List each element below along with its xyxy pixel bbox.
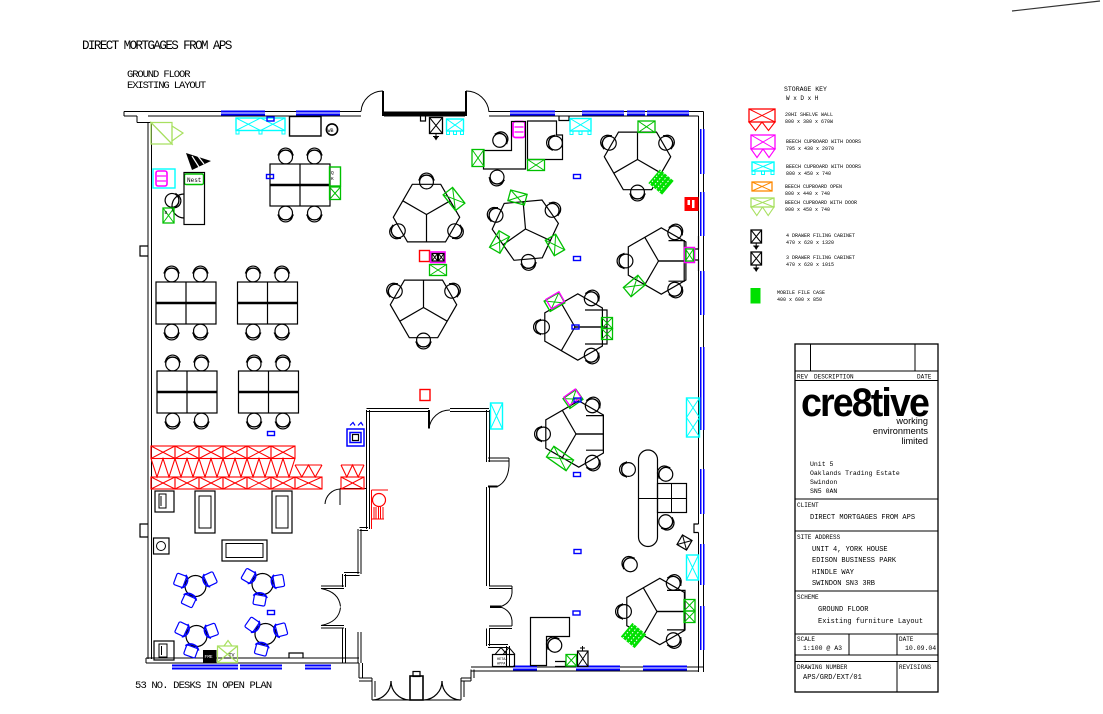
svg-text:STORAGE KEY: STORAGE KEY [784,86,827,93]
svg-text:800 x 450 x 740: 800 x 450 x 740 [786,171,831,177]
svg-text:B: B [165,210,168,216]
svg-text:3 DRAWER FILING CABINET: 3 DRAWER FILING CABINET [786,255,855,261]
svg-text:DRAWING NUMBER: DRAWING NUMBER [797,664,848,671]
svg-text:HINDLE WAY: HINDLE WAY [812,569,855,577]
svg-text:53 NO. DESKS IN OPEN PLAN: 53 NO. DESKS IN OPEN PLAN [135,680,272,692]
svg-text:BEECH CUPBOARD WITH DOOR: BEECH CUPBOARD WITH DOOR [785,200,857,206]
svg-text:400 x 600 x 850: 400 x 600 x 850 [777,297,822,303]
svg-text:800 x 380 x 670W: 800 x 380 x 670W [785,119,833,125]
svg-text:470 x 620 x 1015: 470 x 620 x 1015 [786,262,834,268]
svg-text:HETAJ: HETAJ [497,658,508,662]
svg-text:DATE: DATE [899,636,914,643]
svg-text:environments: environments [873,426,929,436]
svg-text:limited: limited [901,436,928,446]
svg-text:SITE ADDRESS: SITE ADDRESS [797,534,841,541]
svg-text:working: working [895,416,928,426]
svg-text:WB: WB [328,128,334,134]
svg-text:REV: REV [797,374,808,381]
svg-text:GROUND FLOOR: GROUND FLOOR [818,606,869,614]
svg-text:EDISON BUSINESS PARK: EDISON BUSINESS PARK [812,557,897,565]
svg-text:SN5 0AN: SN5 0AN [810,488,837,495]
svg-text:900 x 450 x 740: 900 x 450 x 740 [785,207,830,213]
svg-text:Swindon: Swindon [810,479,837,486]
svg-text:DIRECT MORTGAGES FROM APS: DIRECT MORTGAGES FROM APS [82,39,232,53]
svg-text:1:100 @ A3: 1:100 @ A3 [803,645,842,652]
svg-text:TV: TV [229,653,235,659]
svg-text:BEECH CUPBOARD WITH DOORS: BEECH CUPBOARD WITH DOORS [786,139,861,145]
svg-text:W x D x H: W x D x H [786,95,819,102]
svg-text:800 x 440 x 740: 800 x 440 x 740 [785,191,830,197]
svg-text:4 DRAWER FILING CABINET: 4 DRAWER FILING CABINET [786,233,855,239]
svg-text:470 x 620 x 1320: 470 x 620 x 1320 [786,240,834,246]
svg-text:Existing furniture Layout: Existing furniture Layout [818,618,923,626]
svg-text:SWINDON SN3 3RB: SWINDON SN3 3RB [812,580,875,588]
svg-text:DIRECT MORTGAGES FROM APS: DIRECT MORTGAGES FROM APS [810,514,915,522]
svg-text:EXISTING LAYOUT: EXISTING LAYOUT [127,80,206,92]
svg-text:APPA: APPA [497,663,506,667]
svg-text:DESCRIPTION: DESCRIPTION [814,374,854,381]
svg-text:REVISIONS: REVISIONS [899,664,932,671]
svg-text:DATE: DATE [917,374,932,381]
svg-text:Q: Q [331,170,334,176]
svg-text:MOBILE FILE CASE: MOBILE FILE CASE [777,290,825,296]
svg-text:APS/GRD/EXT/01: APS/GRD/EXT/01 [803,674,862,682]
svg-text:K: K [331,176,334,182]
svg-text:BEECH CUPBOARD WITH DOORS: BEECH CUPBOARD WITH DOORS [786,164,861,170]
svg-text:BEECH CUPBOARD OPEN: BEECH CUPBOARD OPEN [785,184,842,190]
svg-text:CLIENT: CLIENT [797,502,819,509]
svg-text:Unit 5: Unit 5 [810,461,834,468]
svg-text:SCHEME: SCHEME [797,594,819,601]
svg-text:Nest: Nest [187,177,201,184]
svg-text:UNIT 4, YORK HOUSE: UNIT 4, YORK HOUSE [812,546,888,554]
svg-text:Oaklands Trading Estate: Oaklands Trading Estate [810,470,900,477]
svg-text:20HI SHELVE WALL: 20HI SHELVE WALL [785,112,833,118]
svg-text:FME: FME [205,654,213,660]
svg-text:10.09.04: 10.09.04 [905,645,936,652]
svg-text:795 x 430 x 2070: 795 x 430 x 2070 [786,146,834,152]
svg-text:SCALE: SCALE [797,636,815,643]
